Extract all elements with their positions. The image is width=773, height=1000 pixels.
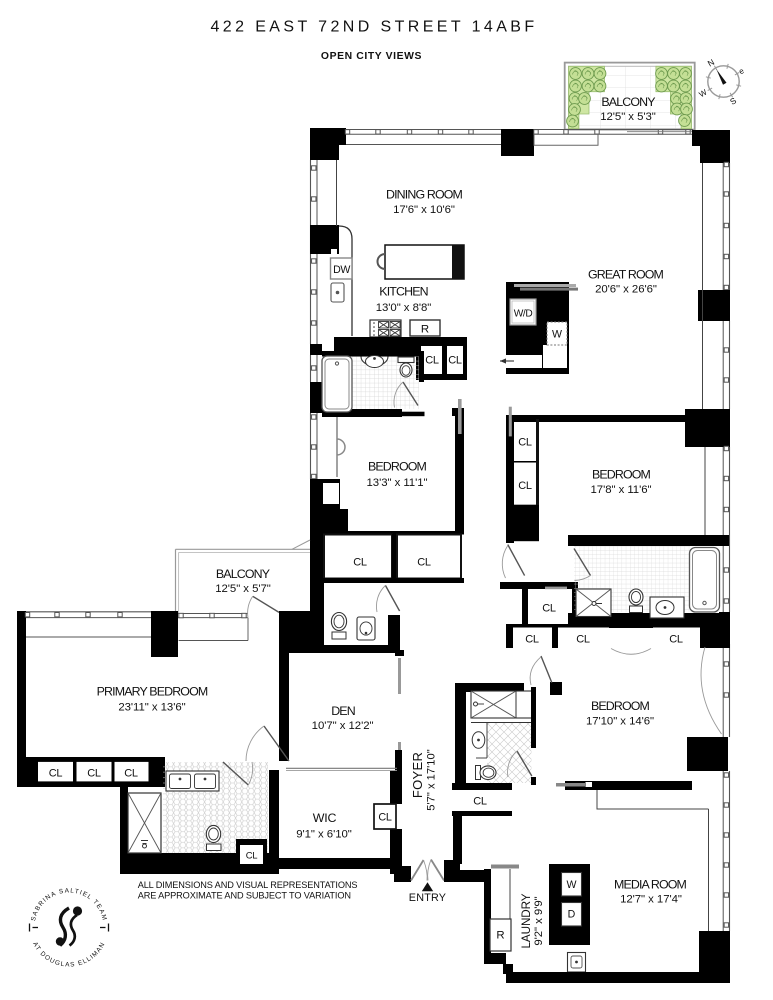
- svg-text:12'5" x 5'7": 12'5" x 5'7": [215, 583, 271, 595]
- svg-text:23'11" x 13'6": 23'11" x 13'6": [118, 702, 185, 714]
- svg-text:WIC: WIC: [313, 811, 337, 825]
- svg-text:10'7" x 12'2": 10'7" x 12'2": [312, 720, 374, 732]
- svg-text:CL: CL: [669, 634, 683, 646]
- svg-text:OPEN CITY VIEWS: OPEN CITY VIEWS: [321, 51, 422, 62]
- svg-text:DINING ROOM: DINING ROOM: [386, 187, 463, 201]
- svg-text:MEDIA ROOM: MEDIA ROOM: [614, 878, 687, 892]
- svg-text:BEDROOM: BEDROOM: [592, 467, 651, 481]
- svg-text:W/D: W/D: [514, 309, 533, 320]
- svg-text:12'5" x 5'3": 12'5" x 5'3": [600, 111, 656, 123]
- svg-text:422 EAST 72ND STREET 14ABF: 422 EAST 72ND STREET 14ABF: [210, 19, 537, 36]
- svg-text:20'6" x 26'6": 20'6" x 26'6": [595, 284, 657, 296]
- svg-text:SABRINA SALTIEL TEAM: SABRINA SALTIEL TEAM: [30, 887, 108, 921]
- svg-text:PRIMARY BEDROOM: PRIMARY BEDROOM: [97, 685, 208, 699]
- svg-text:e: e: [737, 66, 746, 76]
- svg-text:R: R: [421, 324, 429, 336]
- svg-text:BALCONY: BALCONY: [216, 567, 270, 581]
- svg-text:CL: CL: [576, 634, 590, 646]
- svg-text:CL: CL: [425, 355, 439, 367]
- svg-text:9'1" x 6'10": 9'1" x 6'10": [296, 829, 352, 841]
- svg-text:17'6" x 10'6": 17'6" x 10'6": [393, 204, 455, 216]
- svg-text:DW: DW: [333, 264, 350, 276]
- svg-text:R: R: [496, 930, 504, 942]
- svg-text:S: S: [728, 95, 738, 107]
- svg-text:5'7" x 17'10": 5'7" x 17'10": [426, 749, 438, 810]
- svg-text:BALCONY: BALCONY: [601, 95, 655, 109]
- svg-text:ALL DIMENSIONS AND VISUAL REPR: ALL DIMENSIONS AND VISUAL REPRESENTATION…: [138, 880, 358, 890]
- svg-text:CL: CL: [124, 768, 138, 780]
- svg-text:9'2" x 9'9": 9'2" x 9'9": [533, 896, 545, 945]
- svg-text:CL: CL: [353, 557, 367, 569]
- svg-text:W: W: [552, 329, 562, 341]
- svg-text:13'0" x 8'8": 13'0" x 8'8": [376, 302, 432, 314]
- svg-text:CL: CL: [525, 634, 539, 646]
- svg-text:CL: CL: [518, 437, 532, 449]
- svg-text:KITCHEN: KITCHEN: [379, 284, 427, 298]
- svg-text:W: W: [567, 879, 577, 891]
- svg-text:AT DOUGLAS ELLIMAN: AT DOUGLAS ELLIMAN: [31, 941, 107, 969]
- svg-text:CL: CL: [49, 768, 63, 780]
- svg-text:GREAT ROOM: GREAT ROOM: [588, 268, 664, 282]
- svg-text:17'10" x 14'6": 17'10" x 14'6": [586, 716, 654, 728]
- svg-text:CL: CL: [378, 812, 391, 824]
- svg-text:D: D: [568, 909, 576, 921]
- svg-text:17'8" x 11'6": 17'8" x 11'6": [591, 484, 652, 496]
- svg-text:W: W: [698, 87, 709, 99]
- svg-text:CL: CL: [473, 796, 487, 808]
- svg-text:BEDROOM: BEDROOM: [368, 460, 427, 474]
- svg-text:LAUNDRY: LAUNDRY: [520, 893, 533, 948]
- svg-text:FOYER: FOYER: [410, 752, 425, 798]
- svg-text:ENTRY: ENTRY: [409, 892, 446, 904]
- svg-text:12'7" x 17'4": 12'7" x 17'4": [620, 894, 682, 906]
- svg-text:CL: CL: [518, 480, 532, 492]
- svg-text:BEDROOM: BEDROOM: [591, 699, 650, 713]
- svg-text:CL: CL: [246, 851, 258, 862]
- svg-text:CL: CL: [542, 603, 556, 615]
- svg-text:ARE APPROXIMATE AND SUBJECT TO: ARE APPROXIMATE AND SUBJECT TO VARIATION: [138, 890, 351, 900]
- svg-text:CL: CL: [87, 768, 101, 780]
- svg-text:CL: CL: [417, 557, 431, 569]
- svg-text:13'3" x 11'1": 13'3" x 11'1": [367, 477, 428, 489]
- svg-text:DEN: DEN: [331, 704, 355, 718]
- svg-text:CL: CL: [448, 355, 462, 367]
